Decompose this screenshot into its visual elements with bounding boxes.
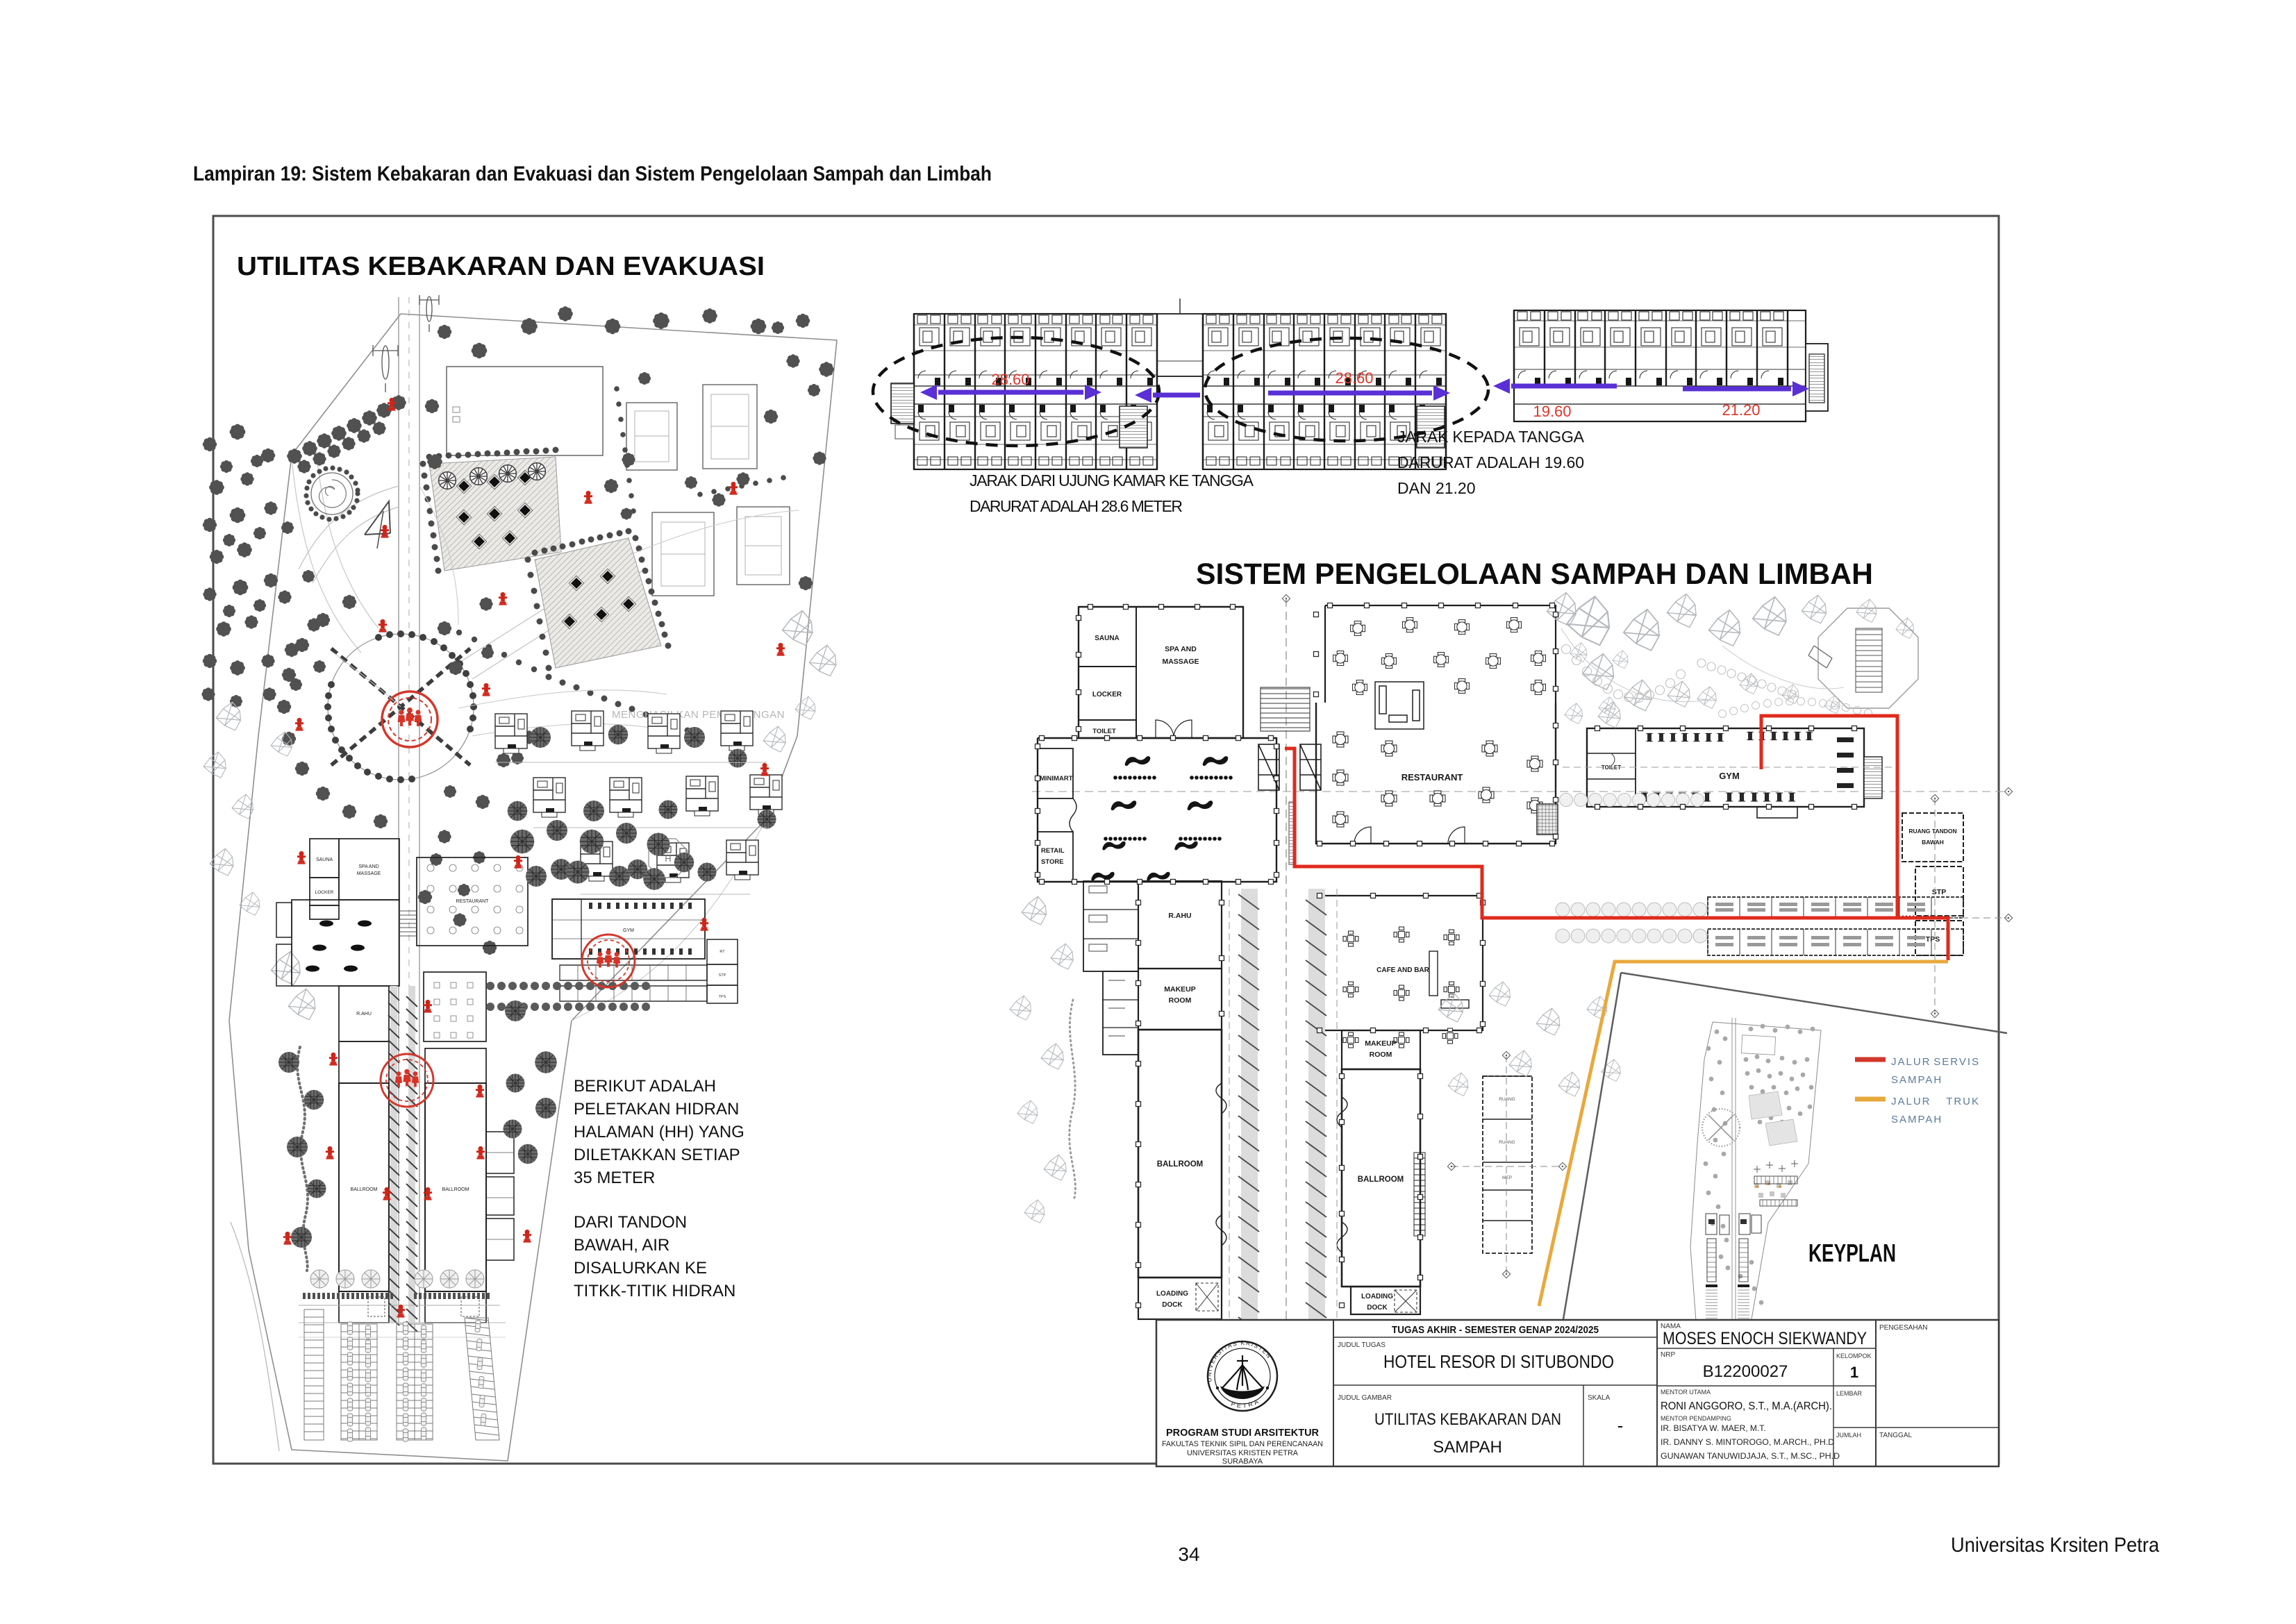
svg-text:KEYPLAN: KEYPLAN bbox=[1808, 1239, 1896, 1267]
svg-text:28.60: 28.60 bbox=[1335, 369, 1373, 387]
svg-text:GYM: GYM bbox=[1719, 771, 1740, 781]
svg-text:STORE: STORE bbox=[1041, 858, 1064, 866]
svg-text:PENGESAHAN: PENGESAHAN bbox=[1879, 1324, 1927, 1332]
svg-text:SISTEM PENGELOLAAN SAMPAH DAN: SISTEM PENGELOLAAN SAMPAH DAN LIMBAH bbox=[1196, 558, 1873, 591]
svg-text:TUGAS AKHIR - SEMESTER GENAP 2: TUGAS AKHIR - SEMESTER GENAP 2024/2025 bbox=[1392, 1324, 1599, 1336]
svg-text:SURABAYA: SURABAYA bbox=[1222, 1457, 1263, 1466]
svg-text:NRP: NRP bbox=[1661, 1351, 1675, 1359]
svg-text:SAMPAH: SAMPAH bbox=[1891, 1114, 1943, 1125]
svg-text:FAKULTAS TEKNIK SIPIL DAN PERE: FAKULTAS TEKNIK SIPIL DAN PERENCANAAN bbox=[1162, 1440, 1323, 1448]
svg-text:TOILET: TOILET bbox=[1092, 728, 1116, 735]
svg-text:RESTAURANT: RESTAURANT bbox=[456, 899, 490, 904]
svg-text:JUDUL TUGAS: JUDUL TUGAS bbox=[1338, 1341, 1386, 1349]
svg-text:JUMLAH: JUMLAH bbox=[1836, 1432, 1861, 1439]
svg-text:DAN 21.20: DAN 21.20 bbox=[1397, 479, 1476, 497]
svg-text:Universitas Krsiten Petra: Universitas Krsiten Petra bbox=[1951, 1534, 2159, 1557]
svg-text:BALLROOM: BALLROOM bbox=[442, 1187, 469, 1192]
svg-text:RUANG: RUANG bbox=[1499, 1097, 1515, 1102]
svg-text:DARURAT ADALAH 19.60: DARURAT ADALAH 19.60 bbox=[1397, 453, 1584, 471]
svg-text:H: H bbox=[665, 853, 671, 864]
svg-text:HALAMAN (HH) YANG: HALAMAN (HH) YANG bbox=[574, 1123, 744, 1141]
svg-text:UTILITAS KEBAKARAN DAN: UTILITAS KEBAKARAN DAN bbox=[1374, 1410, 1561, 1429]
svg-text:BALLROOM: BALLROOM bbox=[1157, 1160, 1203, 1169]
svg-text:BERIKUT ADALAH: BERIKUT ADALAH bbox=[574, 1077, 716, 1096]
svg-text:SPA AND: SPA AND bbox=[1165, 645, 1197, 653]
svg-text:KELOMPOK: KELOMPOK bbox=[1836, 1353, 1872, 1359]
svg-text:CAFE AND BAR: CAFE AND BAR bbox=[1376, 966, 1430, 974]
svg-text:HOTEL RESOR DI SITUBONDO: HOTEL RESOR DI SITUBONDO bbox=[1383, 1351, 1614, 1372]
svg-text:RETAIL: RETAIL bbox=[1041, 847, 1065, 855]
svg-text:TANGGAL: TANGGAL bbox=[1879, 1432, 1912, 1439]
svg-text:SERVIS: SERVIS bbox=[1933, 1056, 1980, 1068]
svg-text:TITKK-TITIK HIDRAN: TITKK-TITIK HIDRAN bbox=[574, 1282, 735, 1300]
svg-text:LOCKER: LOCKER bbox=[315, 890, 334, 895]
svg-text:MAKEUP: MAKEUP bbox=[1164, 985, 1196, 994]
svg-text:BAWAH, AIR: BAWAH, AIR bbox=[574, 1236, 669, 1255]
svg-text:MENTOR UTAMA: MENTOR UTAMA bbox=[1661, 1389, 1711, 1396]
svg-text:UNIVERSITAS KRISTEN PETRA: UNIVERSITAS KRISTEN PETRA bbox=[1187, 1449, 1299, 1457]
svg-text:DOCK: DOCK bbox=[1162, 1301, 1183, 1309]
svg-text:STP: STP bbox=[1932, 888, 1946, 896]
svg-text:JALUR: JALUR bbox=[1891, 1096, 1931, 1107]
svg-text:DILETAKKAN SETIAP: DILETAKKAN SETIAP bbox=[574, 1146, 740, 1164]
svg-text:JALUR: JALUR bbox=[1891, 1056, 1931, 1068]
svg-text:IR. DANNY S. MINTOROGO, M.ARCH: IR. DANNY S. MINTOROGO, M.ARCH., PH.D bbox=[1661, 1437, 1834, 1447]
svg-text:RESTAURANT: RESTAURANT bbox=[1401, 772, 1463, 782]
svg-text:BAWAH: BAWAH bbox=[1922, 839, 1944, 846]
svg-text:MASSAGE: MASSAGE bbox=[1162, 658, 1199, 666]
svg-text:ROOM: ROOM bbox=[1169, 996, 1192, 1005]
svg-text:21.20: 21.20 bbox=[1722, 401, 1760, 419]
svg-text:TPS: TPS bbox=[1926, 935, 1940, 944]
svg-text:JUDUL GAMBAR: JUDUL GAMBAR bbox=[1338, 1394, 1392, 1402]
svg-text:LOADING: LOADING bbox=[1156, 1290, 1188, 1298]
svg-text:JARAK KEPADA TANGGA: JARAK KEPADA TANGGA bbox=[1397, 428, 1585, 446]
svg-text:R.AHU: R.AHU bbox=[356, 1012, 372, 1016]
svg-text:PELETAKAN HIDRAN: PELETAKAN HIDRAN bbox=[574, 1100, 739, 1119]
svg-text:MASSAGE: MASSAGE bbox=[357, 871, 381, 876]
svg-text:RUANG: RUANG bbox=[1499, 1140, 1515, 1145]
svg-text:SAMPAH: SAMPAH bbox=[1891, 1074, 1943, 1086]
svg-text:PROGRAM STUDI ARSITEKTUR: PROGRAM STUDI ARSITEKTUR bbox=[1166, 1427, 1319, 1439]
svg-text:BALLROOM: BALLROOM bbox=[1358, 1175, 1404, 1184]
svg-text:RT: RT bbox=[719, 950, 725, 954]
svg-text:LOADING: LOADING bbox=[1361, 1293, 1393, 1300]
svg-text:TPS: TPS bbox=[719, 995, 726, 999]
svg-text:MEP: MEP bbox=[1502, 1175, 1512, 1180]
svg-text:MAKEUP: MAKEUP bbox=[1365, 1039, 1397, 1048]
svg-text:B12200027: B12200027 bbox=[1703, 1362, 1788, 1381]
svg-text:Lampiran 19: Sistem Kebakaran: Lampiran 19: Sistem Kebakaran dan Evakua… bbox=[193, 162, 992, 185]
svg-text:28.60: 28.60 bbox=[991, 371, 1029, 388]
svg-text:1: 1 bbox=[1850, 1364, 1858, 1381]
svg-text:UTILITAS KEBAKARAN DAN EVAKUAS: UTILITAS KEBAKARAN DAN EVAKUASI bbox=[237, 252, 765, 281]
svg-text:JARAK DARI UJUNG KAMAR KE TANG: JARAK DARI UJUNG KAMAR KE TANGGA bbox=[970, 471, 1254, 489]
svg-text:RONI ANGGORO, S.T., M.A.(ARCH): RONI ANGGORO, S.T., M.A.(ARCH). bbox=[1661, 1400, 1832, 1412]
svg-text:ROOM: ROOM bbox=[1370, 1050, 1392, 1059]
svg-text:BALLROOM: BALLROOM bbox=[351, 1187, 378, 1192]
svg-text:SAUNA: SAUNA bbox=[1095, 635, 1120, 642]
svg-text:DOCK: DOCK bbox=[1367, 1304, 1388, 1312]
svg-text:DARI TANDON: DARI TANDON bbox=[574, 1213, 687, 1232]
svg-text:SPA AND: SPA AND bbox=[358, 864, 378, 869]
svg-text:TRUK: TRUK bbox=[1946, 1096, 1980, 1107]
svg-text:IR. BISATYA W. MAER, M.T.: IR. BISATYA W. MAER, M.T. bbox=[1661, 1423, 1766, 1433]
svg-text:SAUNA: SAUNA bbox=[316, 857, 333, 862]
svg-text:35 METER: 35 METER bbox=[574, 1169, 655, 1187]
svg-text:19.60: 19.60 bbox=[1533, 403, 1571, 420]
svg-text:LEMBAR: LEMBAR bbox=[1836, 1390, 1863, 1397]
svg-text:MENTOR PENDAMPING: MENTOR PENDAMPING bbox=[1661, 1415, 1731, 1422]
svg-text:MINIMART: MINIMART bbox=[1040, 775, 1073, 782]
svg-text:SAMPAH: SAMPAH bbox=[1433, 1438, 1502, 1457]
svg-text:GUNAWAN TANUWIDJAJA, S.T., M.S: GUNAWAN TANUWIDJAJA, S.T., M.SC., PH.D bbox=[1661, 1451, 1840, 1461]
svg-text:MENGHASILKAN PEMBAYANGAN: MENGHASILKAN PEMBAYANGAN bbox=[612, 709, 785, 721]
svg-text:DISALURKAN KE: DISALURKAN KE bbox=[574, 1259, 707, 1278]
svg-text:34: 34 bbox=[1178, 1543, 1199, 1565]
svg-text:DARURAT ADALAH 28.6 METER: DARURAT ADALAH 28.6 METER bbox=[970, 497, 1183, 515]
svg-text:-: - bbox=[1617, 1415, 1624, 1436]
svg-text:GYM: GYM bbox=[623, 928, 634, 933]
svg-text:STP: STP bbox=[719, 973, 726, 978]
svg-text:R.AHU: R.AHU bbox=[1168, 912, 1191, 920]
svg-text:RUANG TANDON: RUANG TANDON bbox=[1908, 828, 1956, 835]
svg-text:SKALA: SKALA bbox=[1588, 1394, 1611, 1402]
svg-text:LOCKER: LOCKER bbox=[1092, 691, 1122, 698]
svg-text:MOSES ENOCH SIEKWANDY: MOSES ENOCH SIEKWANDY bbox=[1663, 1329, 1867, 1348]
